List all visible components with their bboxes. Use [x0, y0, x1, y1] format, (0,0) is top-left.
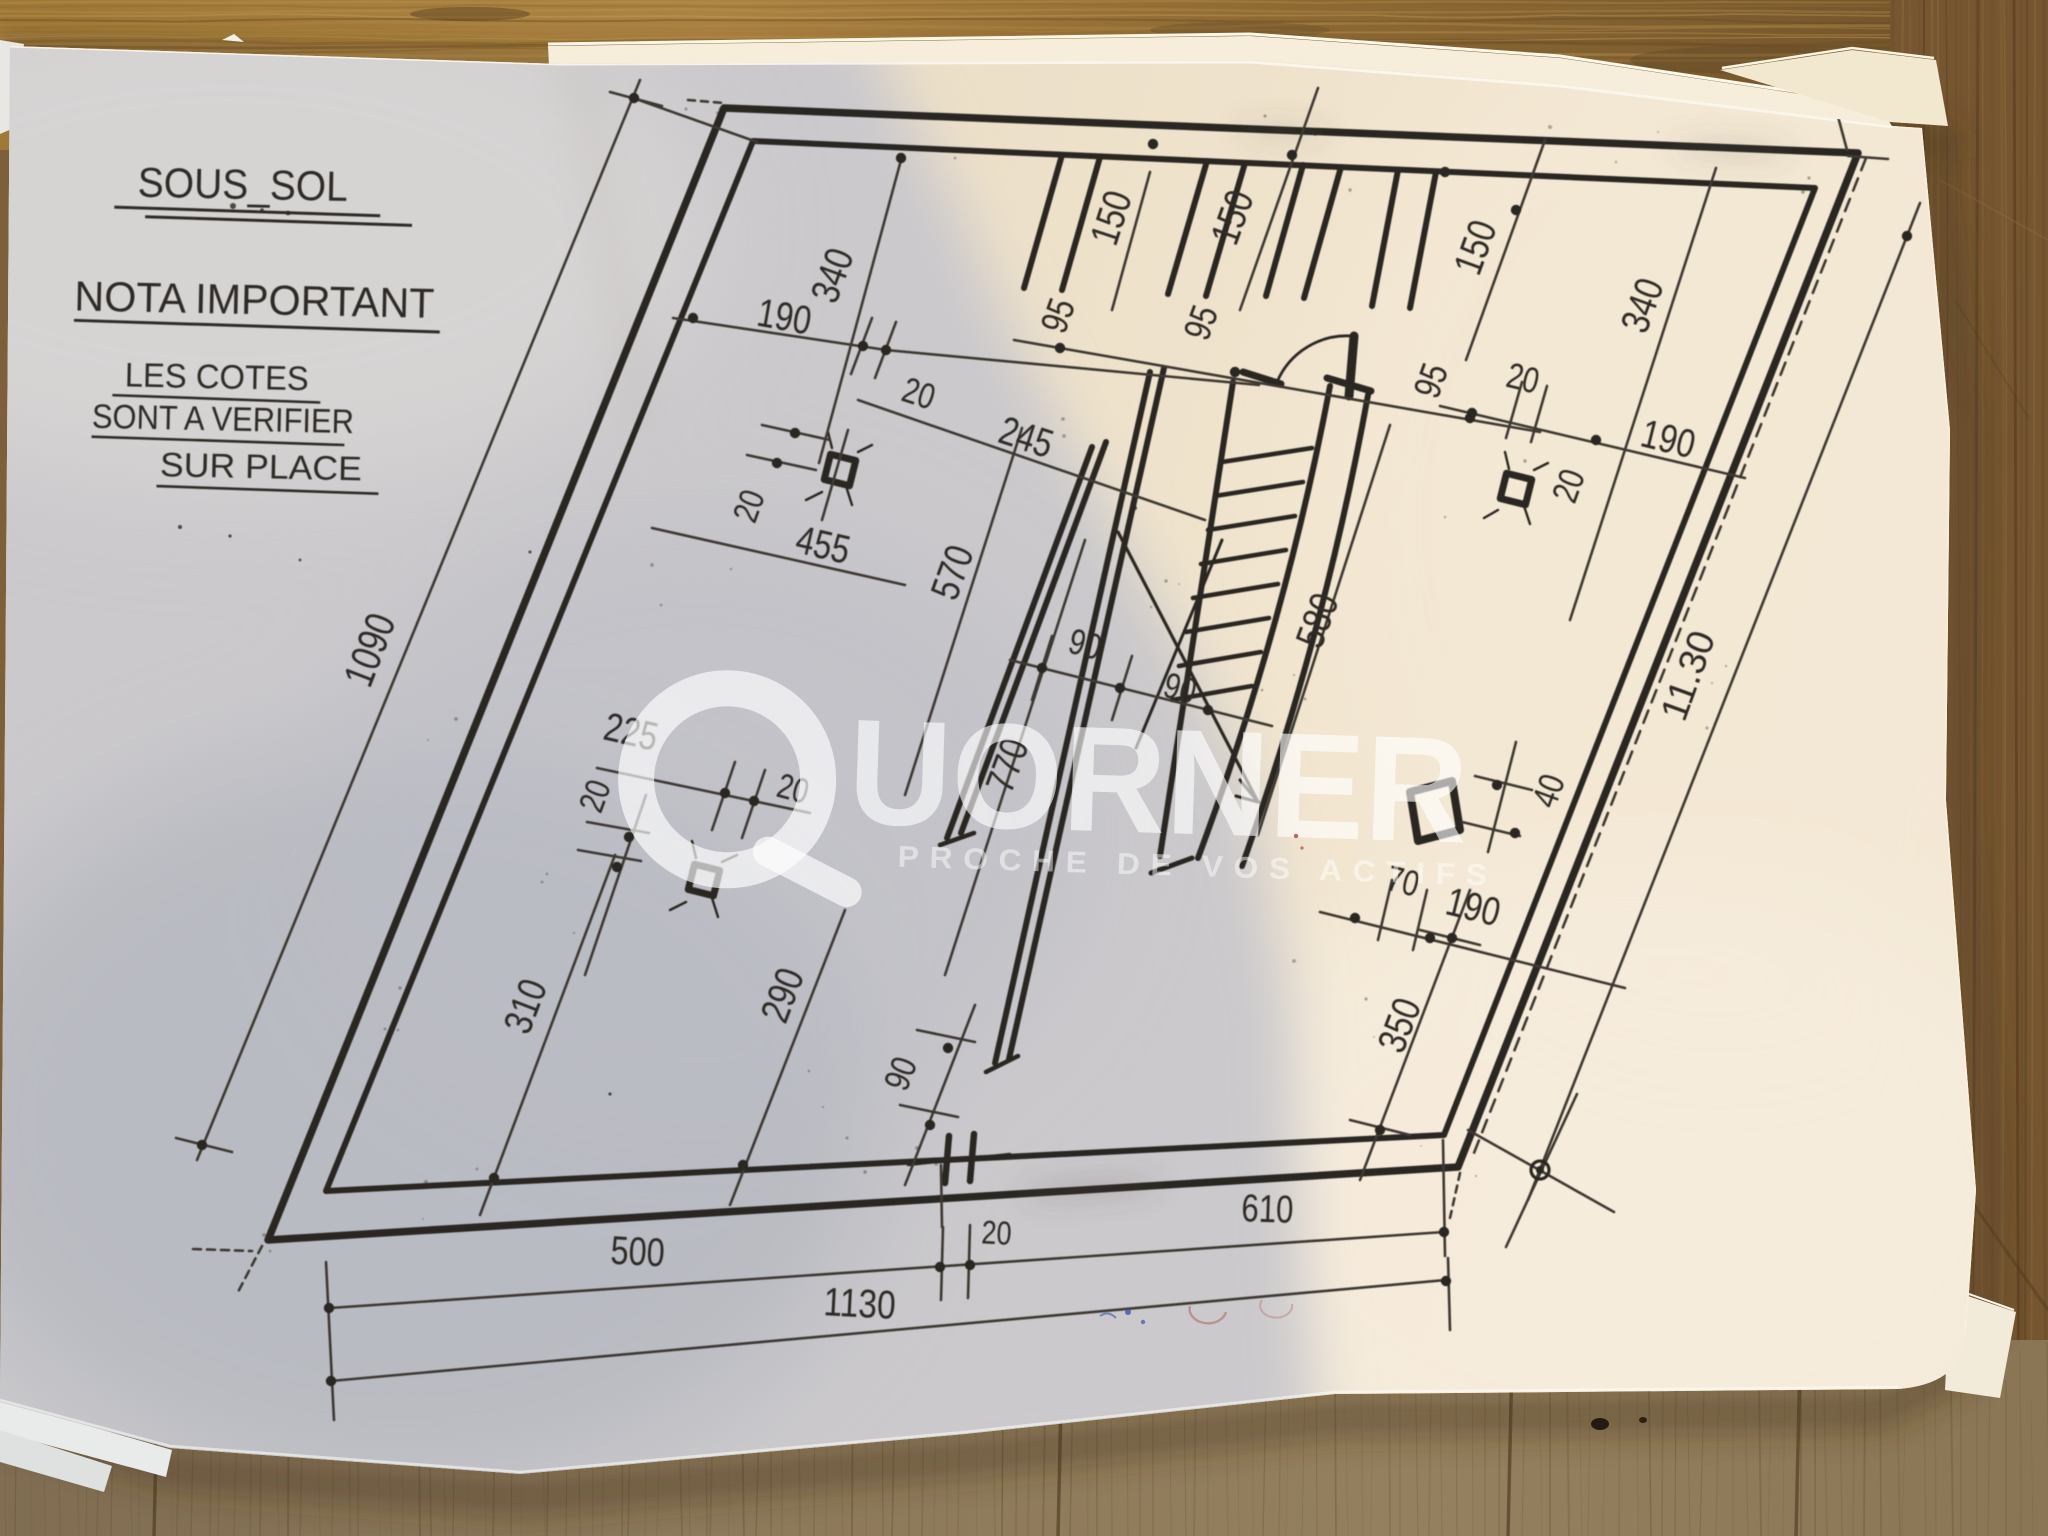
svg-text:20: 20 — [981, 1213, 1013, 1252]
svg-text:SUR PLACE: SUR PLACE — [160, 446, 363, 488]
svg-text:LES COTES: LES COTES — [124, 356, 309, 398]
svg-text:SONT A VERIFIER: SONT A VERIFIER — [92, 398, 355, 441]
svg-text:NOTA IMPORTANT: NOTA IMPORTANT — [74, 272, 435, 327]
svg-text:500: 500 — [610, 1229, 666, 1276]
svg-text:610: 610 — [1241, 1187, 1294, 1232]
svg-text:190: 190 — [754, 291, 815, 344]
svg-text:1130: 1130 — [823, 1280, 897, 1328]
svg-text:SOUS_SOL: SOUS_SOL — [137, 159, 348, 210]
